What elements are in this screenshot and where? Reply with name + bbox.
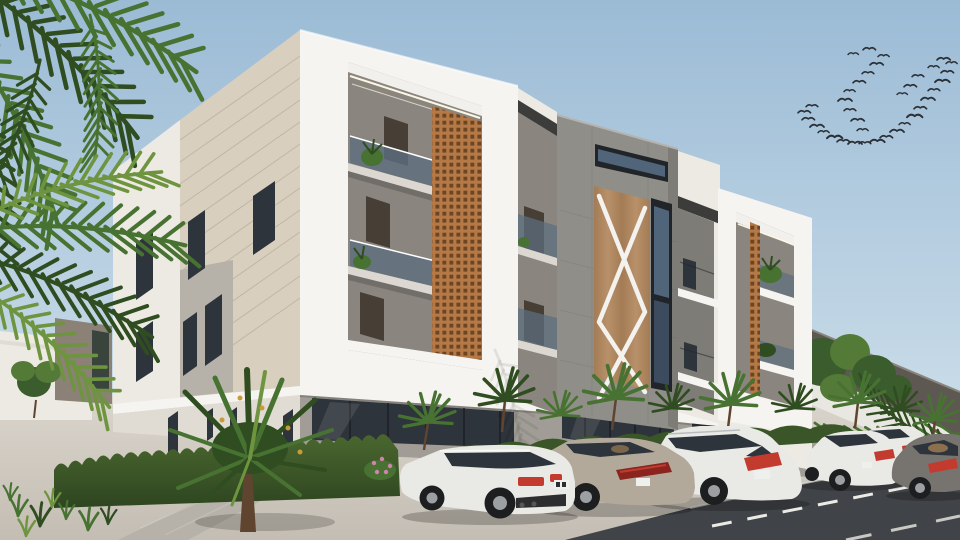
curtain-glazing-lower <box>654 300 669 385</box>
plate-characters <box>562 482 566 487</box>
curtain-glazing-upper <box>654 206 669 298</box>
exhaust-tip <box>532 502 537 507</box>
wheel-hub <box>580 491 592 503</box>
shrub-shadow <box>195 513 335 531</box>
license-plate <box>862 462 872 468</box>
balcony-plant <box>518 237 530 247</box>
mid-recess-balconies <box>518 88 557 414</box>
license-plate <box>754 470 770 479</box>
car-interior <box>928 444 948 453</box>
wheel-hub <box>915 483 925 493</box>
brise-soleil-strip-right <box>750 222 760 396</box>
render-canvas <box>0 0 960 540</box>
tree-foliage <box>11 361 35 381</box>
wheel-hub <box>493 496 507 510</box>
central-tower <box>557 115 678 430</box>
roofline-highlight <box>440 450 530 451</box>
wheel <box>805 467 819 481</box>
wheel-hub <box>427 493 438 504</box>
brise-soleil-lattice <box>432 106 482 370</box>
wheel-hub <box>708 485 720 497</box>
architectural-render <box>0 0 960 540</box>
tree-foliage <box>35 361 61 383</box>
car-white-coupe <box>400 445 578 525</box>
taillight <box>518 477 544 486</box>
right-recess-balconies <box>678 151 720 424</box>
license-plate <box>636 478 650 486</box>
exhaust-tip <box>520 503 525 508</box>
background-box-window <box>92 330 109 392</box>
plate-characters <box>556 482 560 487</box>
car-interior <box>611 445 629 453</box>
wheel-hub <box>835 475 845 485</box>
